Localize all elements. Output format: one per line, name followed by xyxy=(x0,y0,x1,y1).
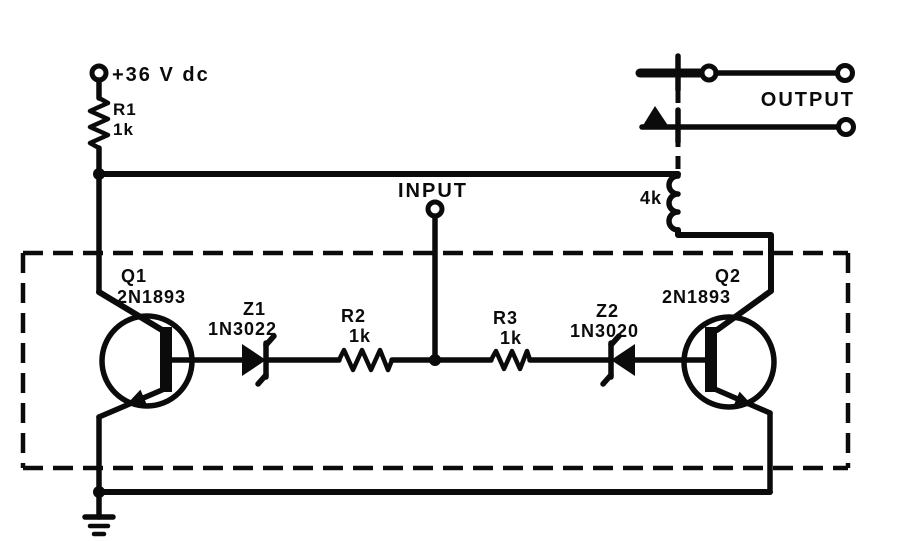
transistor-q2: Q2 2N1893 xyxy=(662,266,774,492)
z2-part-label: 1N3020 xyxy=(570,321,639,341)
schematic-svg: +36 V dc R1 1k OUTPUT 4k INPUT xyxy=(0,0,924,541)
r1-value-label: 1k xyxy=(113,120,134,139)
supply-label: +36 V dc xyxy=(112,64,210,86)
q2-name-label: Q2 xyxy=(715,266,741,286)
input-branch: INPUT xyxy=(398,180,468,366)
r3-name-label: R3 xyxy=(493,308,518,328)
z2-anode-triangle xyxy=(611,344,635,376)
z1-part-label: 1N3022 xyxy=(208,319,277,339)
z1-anode-triangle xyxy=(242,344,266,376)
q1-name-label: Q1 xyxy=(121,266,147,286)
resistor-r2 xyxy=(339,350,392,370)
ground-branch xyxy=(85,486,770,534)
output-label: OUTPUT xyxy=(761,89,855,111)
transistor-q1: Q1 2N1893 xyxy=(99,266,192,492)
relay-fixed-contact-triangle xyxy=(642,106,669,127)
supply-branch: +36 V dc R1 1k xyxy=(90,64,678,292)
z1-name-label: Z1 xyxy=(243,299,266,319)
z1-zener-hook-bottom xyxy=(258,375,266,384)
circuit-schematic: +36 V dc R1 1k OUTPUT 4k INPUT xyxy=(0,0,924,541)
relay-coil xyxy=(669,174,678,230)
output-terminal-lower xyxy=(839,120,854,135)
r2-value-label: 1k xyxy=(349,326,371,346)
resistor-r3 xyxy=(491,351,530,369)
r1-name-label: R1 xyxy=(113,100,137,119)
r2-name-label: R2 xyxy=(341,306,366,326)
q2-base-bar xyxy=(705,327,717,392)
resistor-r2-group: R2 1k xyxy=(266,306,491,370)
z2-zener-hook-bottom xyxy=(603,375,611,384)
output-terminal-upper xyxy=(838,66,853,81)
q1-part-label: 2N1893 xyxy=(117,287,186,307)
q2-part-label: 2N1893 xyxy=(662,287,731,307)
input-label: INPUT xyxy=(398,180,468,202)
z2-name-label: Z2 xyxy=(596,301,619,321)
resistor-r1 xyxy=(90,98,108,148)
r3-value-label: 1k xyxy=(500,328,522,348)
coil-value-label: 4k xyxy=(640,188,662,208)
